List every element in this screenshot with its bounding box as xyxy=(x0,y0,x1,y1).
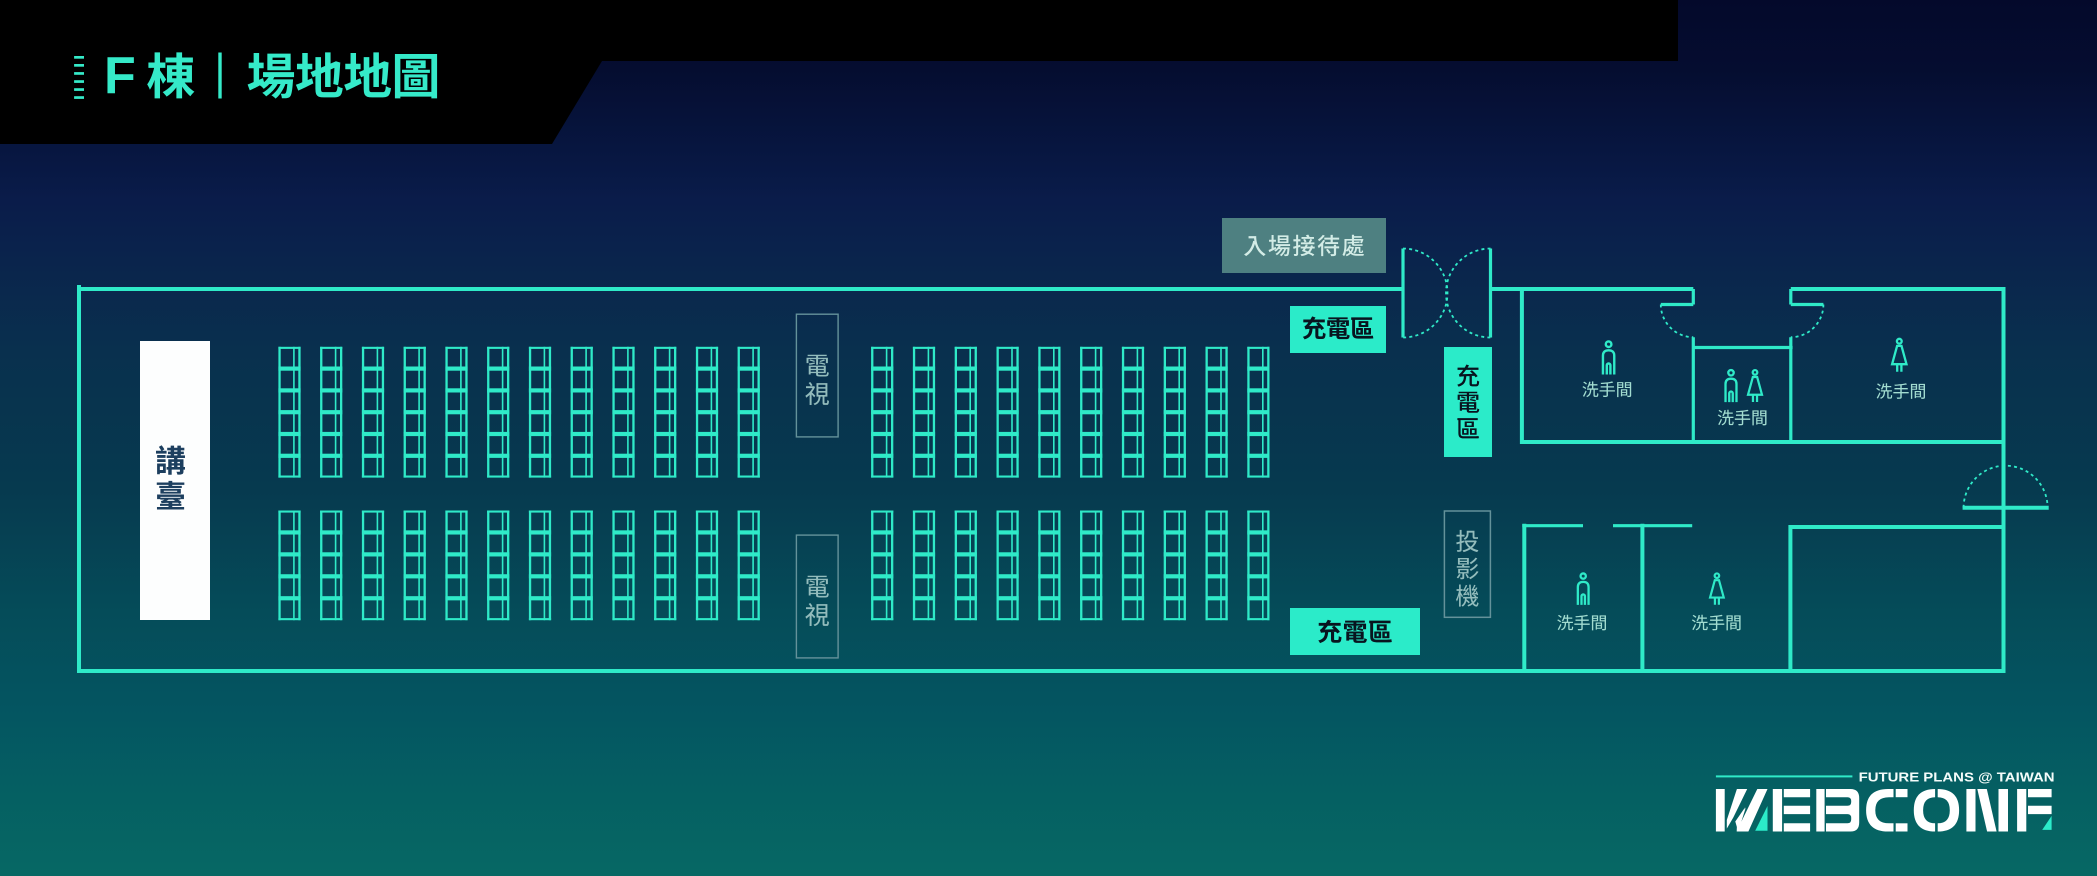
svg-text:FUTURE PLANS @ TAIWAN: FUTURE PLANS @ TAIWAN xyxy=(1859,770,2055,785)
svg-text:F: F xyxy=(104,47,136,105)
